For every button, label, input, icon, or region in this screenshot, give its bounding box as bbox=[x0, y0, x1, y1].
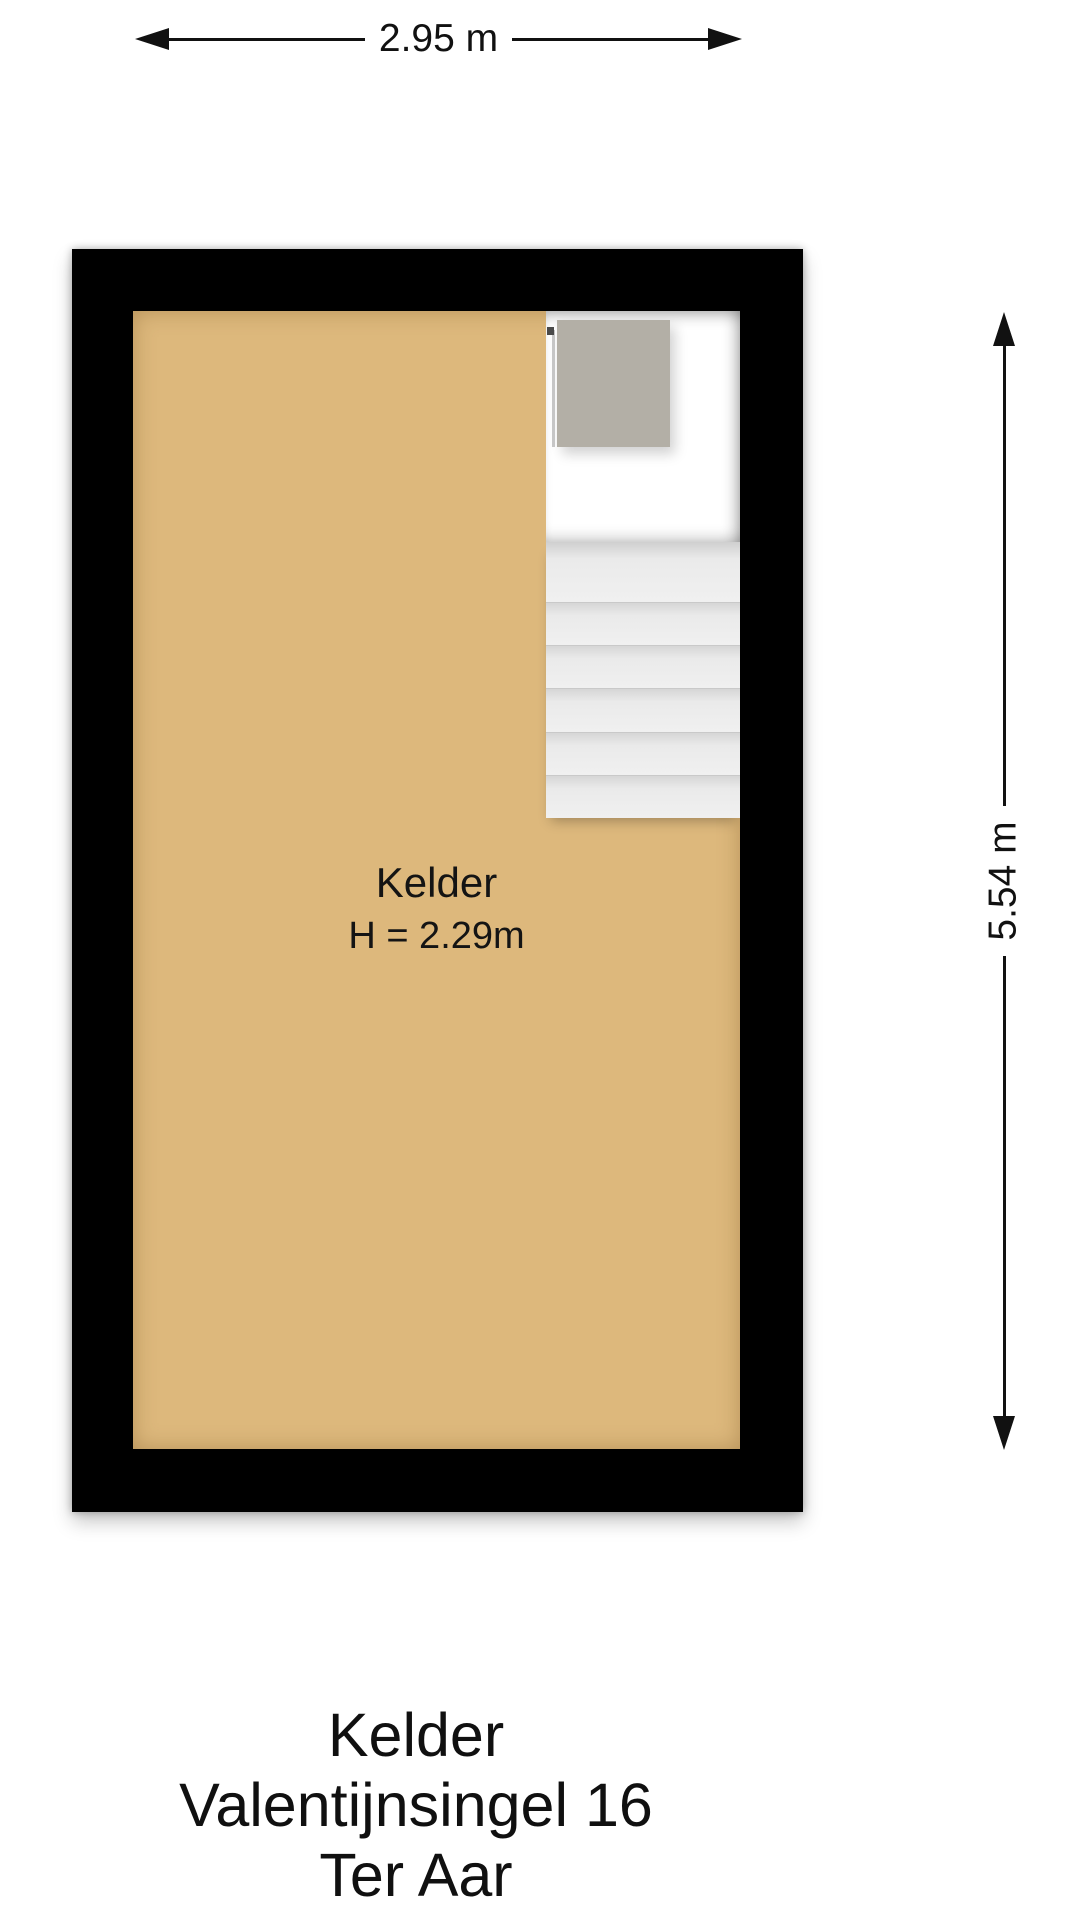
dimension-line bbox=[512, 38, 708, 41]
stair-step bbox=[546, 775, 740, 818]
room-label: Kelder H = 2.29m bbox=[133, 855, 740, 961]
arrowhead-up-icon bbox=[993, 312, 1015, 346]
arrowhead-down-icon bbox=[993, 1416, 1015, 1450]
landing-rail-post bbox=[547, 327, 554, 335]
dimension-line bbox=[1003, 346, 1006, 806]
dimension-line bbox=[169, 38, 365, 41]
stair-step bbox=[546, 732, 740, 775]
arrowhead-right-icon bbox=[708, 28, 742, 50]
width-dimension: 2.95 m bbox=[135, 17, 742, 61]
width-dimension-label: 2.95 m bbox=[365, 17, 512, 61]
wall-outline: Kelder H = 2.29m bbox=[72, 249, 803, 1512]
room-height-label: H = 2.29m bbox=[133, 911, 740, 961]
title-line-room: Kelder bbox=[16, 1700, 816, 1770]
staircase bbox=[546, 542, 740, 818]
stair-step bbox=[546, 602, 740, 645]
plan-title: Kelder Valentijnsingel 16 Ter Aar bbox=[16, 1700, 816, 1910]
stairwell-area bbox=[546, 311, 740, 542]
title-line-address: Valentijnsingel 16 bbox=[16, 1770, 816, 1840]
stair-landing bbox=[557, 320, 670, 447]
dimension-line bbox=[1003, 956, 1006, 1416]
height-dimension-label: 5.54 m bbox=[982, 821, 1026, 940]
landing-rail bbox=[552, 330, 555, 447]
arrowhead-left-icon bbox=[135, 28, 169, 50]
height-dimension: 5.54 m bbox=[985, 312, 1023, 1450]
height-dimension-label-box: 5.54 m bbox=[944, 806, 1063, 956]
stair-step bbox=[546, 688, 740, 731]
floor-plan-page: 2.95 m Kelder H = 2.29m 5.54 m Kelder Va… bbox=[0, 0, 1080, 1920]
stair-step bbox=[546, 542, 740, 602]
title-line-city: Ter Aar bbox=[16, 1840, 816, 1910]
stair-step bbox=[546, 645, 740, 688]
room-name-label: Kelder bbox=[133, 855, 740, 911]
